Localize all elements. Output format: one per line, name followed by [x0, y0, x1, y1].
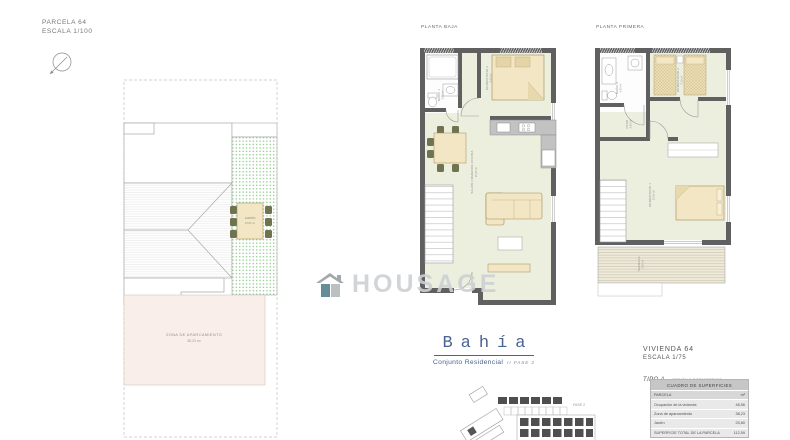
brand-logo: Bahía Conjunto ResidencialII FASE 2	[418, 334, 550, 366]
house-icon	[314, 271, 346, 299]
room-area: 3,85 m²	[441, 90, 445, 99]
coffee-table-icon	[498, 237, 522, 250]
first-plan-title: PLANTA PRIMERA	[596, 25, 644, 30]
room-label: BAÑO 1	[436, 89, 441, 101]
row-value: 38,23	[735, 412, 745, 416]
room-label: DORMITORIO 2	[485, 66, 489, 90]
parking-label: ZONA DE APARCAMIENTO	[166, 332, 222, 337]
room-label: PASO	[625, 119, 629, 128]
parcel-scale: ESCALA 1/100	[42, 27, 93, 36]
parking-area: ZONA DE APARCAMIENTO 38,23 m²	[124, 295, 265, 385]
room-area: 9,05 m²	[489, 73, 493, 82]
stairs-icon	[425, 185, 453, 263]
surfaces-header-row: PARCELA m²	[651, 391, 748, 400]
window-icon	[424, 48, 454, 53]
surfaces-table: CUADRO DE SUPERFICIES PARCELA m² Ocupaci…	[650, 379, 749, 438]
room-area: 9,60 m²	[641, 259, 645, 268]
garden-label: JARDÍN	[245, 216, 256, 220]
brand-subtitle-text: Conjunto Residencial	[433, 359, 503, 366]
ground-floor-plan: BAÑO 1 3,85 m² DORMITORIO 2 9,05 m² SALÓ…	[420, 48, 556, 305]
sheet-header: PARCELA 64 ESCALA 1/100	[42, 18, 93, 36]
row-value: 25,80	[735, 421, 745, 425]
double-bed-icon	[676, 186, 724, 220]
parking-area-label: 38,23 m²	[187, 339, 202, 343]
table-row: SUPERFICIE TOTAL DE LA PARCELA 112,59	[651, 429, 748, 437]
room-area: 4,20 m²	[619, 83, 623, 92]
wardrobe-icon	[668, 143, 718, 157]
unit-title: VIVIENDA 64	[643, 346, 722, 353]
row-label: Zona de aparcamiento	[654, 412, 692, 416]
room-area: 2,95 m²	[629, 119, 633, 128]
parcel-title: PARCELA 64	[42, 18, 93, 27]
row-label: Jardín	[654, 421, 665, 425]
watermark: HOUSAGE	[314, 270, 499, 299]
north-arrow-icon	[50, 53, 71, 74]
unit-scale: ESCALA 1/75	[643, 355, 722, 361]
room-area: 9,15 m²	[680, 75, 684, 84]
window-icon	[652, 48, 710, 53]
row-label: Ocupación de la vivienda	[654, 403, 696, 407]
room-label: SALÓN COMEDOR-COCINA	[469, 150, 474, 193]
room-label: BAÑO 2	[614, 82, 619, 94]
roof-plan	[124, 183, 232, 278]
brand-name: Bahía	[434, 334, 533, 356]
garden-area-label: 25,80 m²	[245, 221, 255, 225]
sliding-door-icon	[664, 240, 702, 245]
table-row: Ocupación de la vivienda 48,56	[651, 400, 748, 409]
row-value: 112,59	[734, 431, 745, 435]
room-label: TERRAZA	[637, 256, 641, 271]
surfaces-table-title: CUADRO DE SUPERFICIES	[651, 380, 748, 391]
garden-area: JARDÍN 25,80 m²	[230, 123, 277, 295]
window-icon	[600, 48, 635, 53]
floorplan-sheet: .vname{font-size:3px;fill:#8b8b85;text-a…	[0, 0, 790, 440]
garden-table-icon	[230, 203, 272, 239]
ground-plan-title: PLANTA BAJA	[421, 25, 458, 30]
table-row: Zona de aparcamiento 38,23	[651, 410, 748, 419]
terrace-deck	[598, 247, 725, 296]
room-label: DORMITORIO 2	[676, 68, 680, 92]
surfaces-header-unit: m²	[741, 393, 745, 397]
stairs-icon	[600, 180, 626, 242]
first-floor-plan: BAÑO 2 4,20 m² PASO 2,95 m² DORMITORIO 2…	[595, 48, 731, 296]
room-label: DORMITORIO 1	[648, 183, 652, 207]
table-row: Jardín 25,80	[651, 419, 748, 428]
double-bed-icon	[492, 55, 544, 100]
row-label: SUPERFICIE TOTAL DE LA PARCELA	[654, 431, 720, 435]
window-icon	[500, 48, 542, 53]
surfaces-header-label: PARCELA	[654, 393, 671, 397]
brand-subtitle: Conjunto ResidencialII FASE 2	[418, 359, 550, 366]
key-plan: FASE 2	[460, 386, 595, 440]
row-value: 48,56	[735, 403, 745, 407]
house-footprint	[124, 123, 232, 183]
site-plan: JARDÍN 25,80 m² ZONA DE APARCAMIENTO 38,…	[124, 80, 277, 437]
keyplan-phase-label: FASE 2	[573, 403, 585, 407]
room-area: 10,90 m²	[652, 190, 656, 200]
room-area: 25,90 m²	[474, 167, 478, 177]
watermark-text: HOUSAGE	[352, 270, 499, 299]
brand-phase: II FASE 2	[503, 360, 535, 365]
